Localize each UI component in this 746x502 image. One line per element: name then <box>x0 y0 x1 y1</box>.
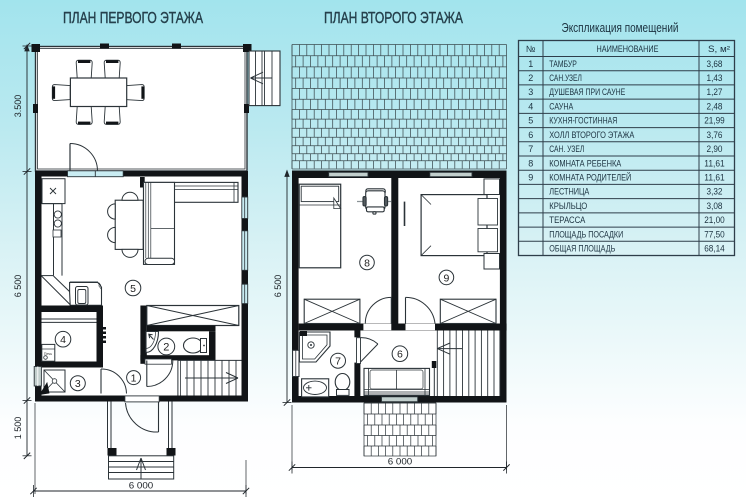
svg-text:11,61: 11,61 <box>704 158 725 168</box>
svg-text:ТЕРАССА: ТЕРАССА <box>549 215 585 225</box>
svg-text:ПЛАН ПЕРВОГО ЭТАЖА: ПЛАН ПЕРВОГО ЭТАЖА <box>63 10 204 27</box>
svg-text:3: 3 <box>528 87 533 97</box>
svg-text:6 000: 6 000 <box>388 457 413 468</box>
svg-text:НАИМЕНОВАНИЕ: НАИМЕНОВАНИЕ <box>597 44 659 54</box>
svg-text:6 500: 6 500 <box>273 275 283 298</box>
svg-text:9: 9 <box>443 272 449 284</box>
svg-text:САУНА: САУНА <box>549 101 573 111</box>
svg-text:1: 1 <box>528 59 533 69</box>
svg-text:8: 8 <box>364 257 370 269</box>
svg-text:6: 6 <box>397 349 403 361</box>
svg-text:2,90: 2,90 <box>707 144 723 154</box>
svg-text:САН. УЗЕЛ: САН. УЗЕЛ <box>549 144 584 154</box>
svg-text:77,50: 77,50 <box>704 229 725 239</box>
svg-text:6 500: 6 500 <box>13 275 23 298</box>
svg-text:1 500: 1 500 <box>13 417 23 440</box>
svg-text:4: 4 <box>528 101 533 111</box>
svg-text:5: 5 <box>130 283 136 295</box>
svg-text:7: 7 <box>335 356 341 368</box>
svg-text:№: № <box>526 44 536 54</box>
svg-text:ЛЕСТНИЦА: ЛЕСТНИЦА <box>549 187 589 197</box>
svg-text:7: 7 <box>528 144 533 154</box>
svg-text:КРЫЛЬЦО: КРЫЛЬЦО <box>549 201 587 211</box>
svg-text:ДУШЕВАЯ ПРИ САУНЕ: ДУШЕВАЯ ПРИ САУНЕ <box>549 87 625 97</box>
svg-text:6: 6 <box>528 130 533 140</box>
svg-text:21,99: 21,99 <box>704 116 725 126</box>
svg-text:3: 3 <box>75 378 81 390</box>
svg-text:3,76: 3,76 <box>707 130 723 140</box>
svg-text:КУХНЯ-ГОСТИННАЯ: КУХНЯ-ГОСТИННАЯ <box>549 116 617 126</box>
svg-text:3,08: 3,08 <box>707 201 723 211</box>
svg-text:САН.УЗЕЛ: САН.УЗЕЛ <box>549 73 582 83</box>
svg-text:ПЛАН ВТОРОГО ЭТАЖА: ПЛАН ВТОРОГО ЭТАЖА <box>324 10 464 27</box>
svg-text:2,48: 2,48 <box>707 101 723 111</box>
svg-text:ПЛОЩАДЬ ПОСАДКИ: ПЛОЩАДЬ ПОСАДКИ <box>549 229 623 239</box>
svg-text:11,61: 11,61 <box>704 173 725 183</box>
svg-text:68,14: 68,14 <box>704 244 725 254</box>
svg-text:1,43: 1,43 <box>707 73 723 83</box>
svg-text:ХОЛЛ ВТОРОГО ЭТАЖА: ХОЛЛ ВТОРОГО ЭТАЖА <box>549 130 634 140</box>
svg-text:6 000: 6 000 <box>129 481 154 492</box>
svg-text:9: 9 <box>528 173 533 183</box>
svg-text:8: 8 <box>528 158 533 168</box>
svg-text:21,00: 21,00 <box>704 215 725 225</box>
svg-text:2: 2 <box>163 342 169 354</box>
svg-text:КОМНАТА РОДИТЕЛЕЙ: КОМНАТА РОДИТЕЛЕЙ <box>549 172 631 183</box>
svg-text:4: 4 <box>60 334 66 346</box>
svg-text:1,27: 1,27 <box>707 87 723 97</box>
svg-text:ТАМБУР: ТАМБУР <box>549 59 577 69</box>
svg-text:S, м²: S, м² <box>708 44 730 54</box>
svg-text:Экспликация помещений: Экспликация помещений <box>562 20 679 35</box>
svg-text:2: 2 <box>528 73 533 83</box>
svg-text:3.500: 3.500 <box>13 95 23 118</box>
svg-text:5: 5 <box>528 116 533 126</box>
svg-text:3,32: 3,32 <box>707 187 723 197</box>
svg-text:3,68: 3,68 <box>707 59 723 69</box>
svg-text:ОБЩАЯ ПЛОЩАДЬ: ОБЩАЯ ПЛОЩАДЬ <box>549 244 615 254</box>
svg-text:1: 1 <box>131 372 137 384</box>
svg-text:КОМНАТА РЕБЕНКА: КОМНАТА РЕБЕНКА <box>549 158 621 168</box>
